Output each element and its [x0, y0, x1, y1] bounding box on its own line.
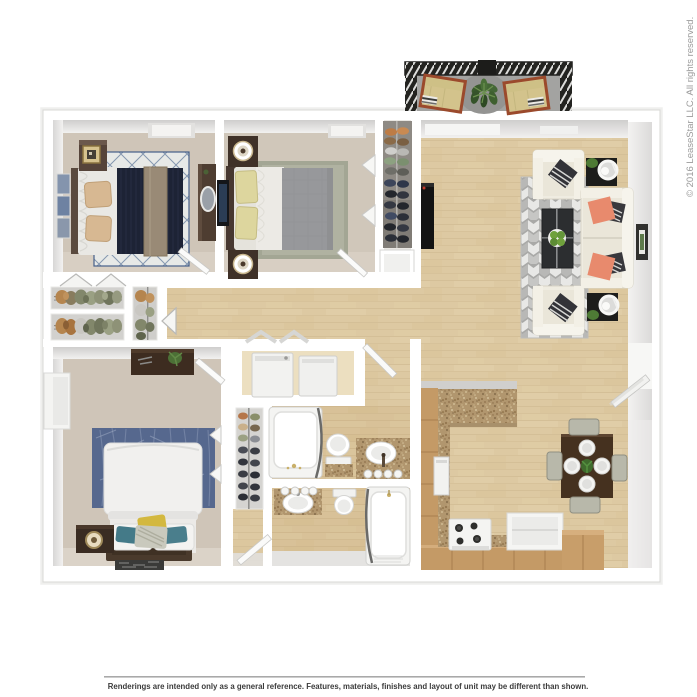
- svg-text:© 2016 LeaseStar LLC. All righ: © 2016 LeaseStar LLC. All rights reserve…: [685, 17, 696, 197]
- svg-text:Renderings are intended only a: Renderings are intended only as a genera…: [108, 682, 589, 691]
